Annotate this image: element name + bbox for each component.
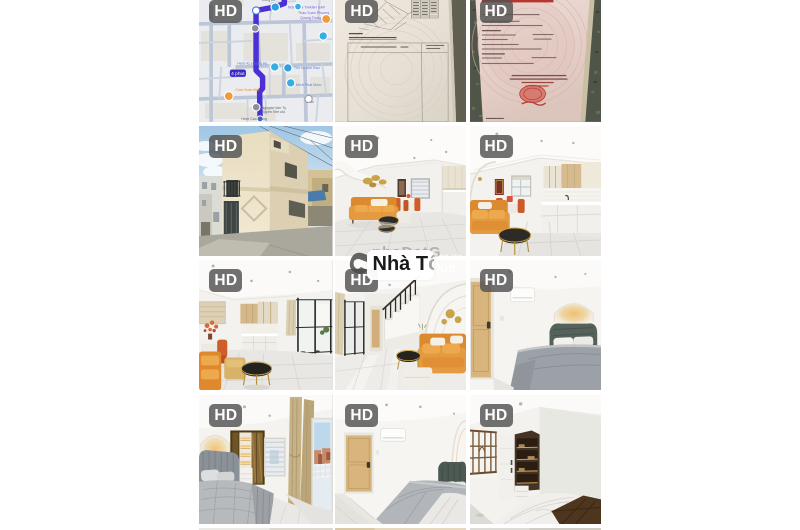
svg-text:Cong Lo: Cong Lo — [262, 0, 276, 2]
svg-text:Hem 41 Hoang He: Hem 41 Hoang He — [238, 62, 268, 66]
svg-text:NGUYEN THANH SAP: NGUYEN THANH SAP — [288, 6, 326, 10]
svg-text:4 phut: 4 phut — [232, 71, 246, 77]
svg-text:Hem Cau Trang: Hem Cau Trang — [242, 117, 268, 121]
svg-text:Minh Phat Moto: Minh Phat Moto — [296, 83, 321, 87]
svg-text:Tho vo Anh Bao: Tho vo Anh Bao — [294, 66, 320, 70]
svg-text:Xuyen Viet oto: Xuyen Viet oto — [262, 110, 286, 114]
svg-text:Com Xuan Mai: Com Xuan Mai — [236, 88, 260, 92]
svg-text:Quang Trung: Quang Trung — [300, 16, 321, 20]
